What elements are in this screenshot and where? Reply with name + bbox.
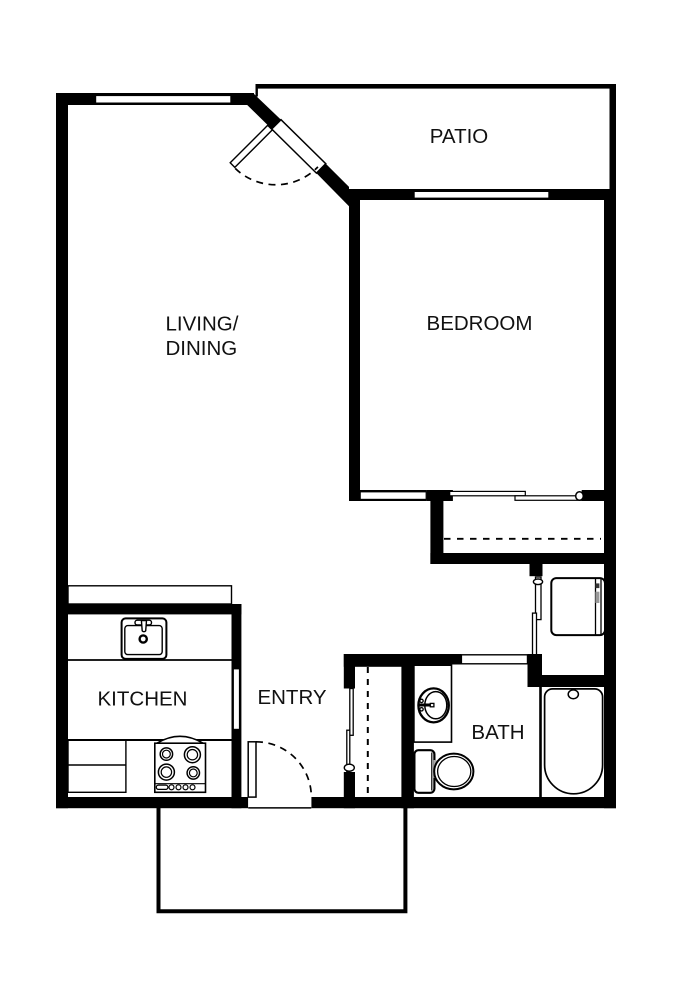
svg-text:PATIO: PATIO bbox=[430, 125, 488, 148]
svg-text:BATH: BATH bbox=[471, 721, 524, 744]
svg-text:ENTRY: ENTRY bbox=[257, 686, 326, 709]
svg-text:DINING: DINING bbox=[166, 337, 238, 360]
svg-text:BEDROOM: BEDROOM bbox=[427, 312, 533, 335]
svg-text:KITCHEN: KITCHEN bbox=[98, 687, 188, 710]
svg-text:LIVING/: LIVING/ bbox=[166, 312, 239, 335]
